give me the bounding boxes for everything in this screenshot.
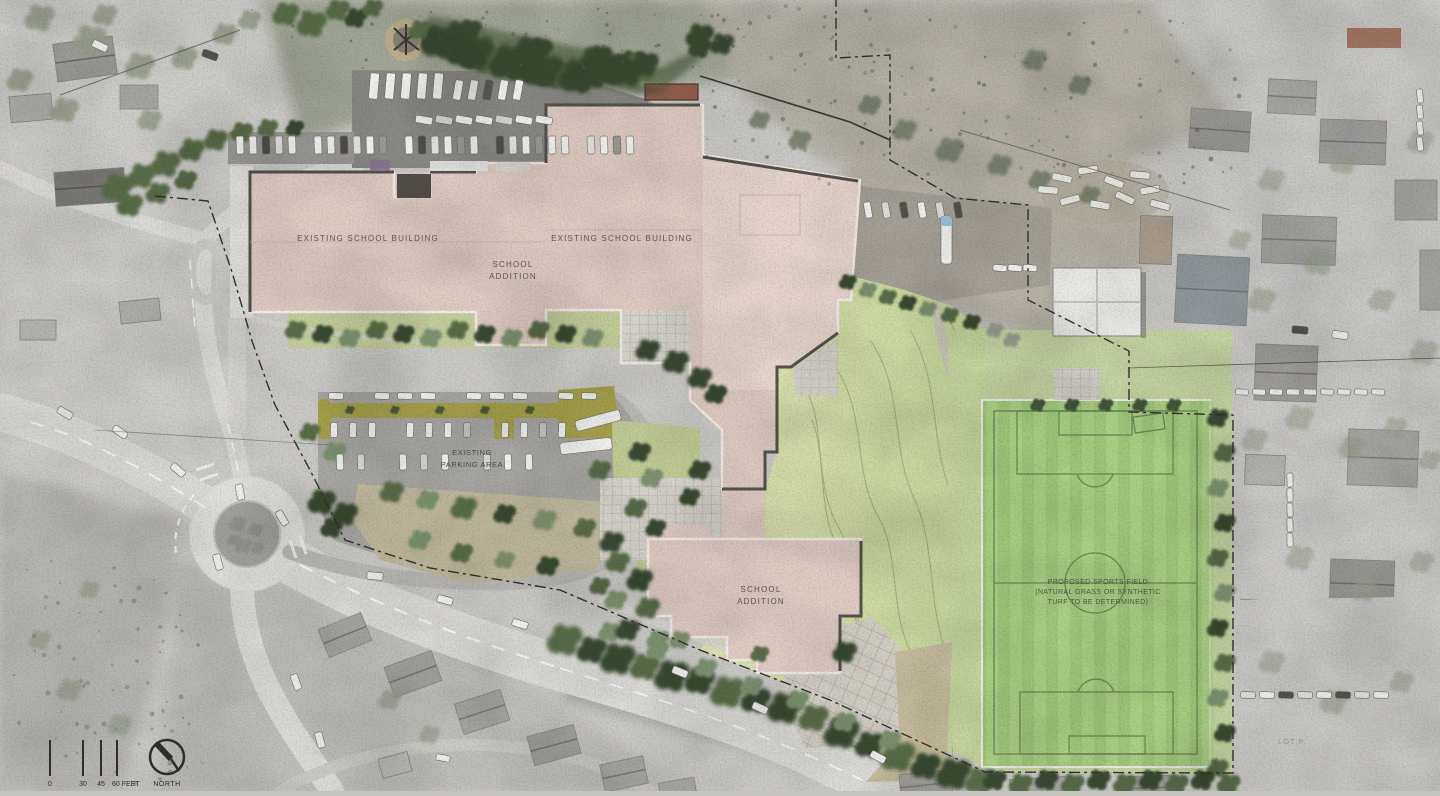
svg-text:PROPOSED SPORTS FIELD: PROPOSED SPORTS FIELD [1048, 579, 1148, 586]
svg-text:ADDITION: ADDITION [737, 597, 785, 606]
svg-text:0: 0 [48, 781, 52, 788]
svg-text:60 FEET: 60 FEET [112, 781, 140, 788]
svg-text:ADDITION: ADDITION [489, 272, 537, 281]
svg-text:PARKING AREA: PARKING AREA [441, 460, 504, 469]
svg-text:TURF TO BE DETERMINED): TURF TO BE DETERMINED) [1048, 599, 1149, 606]
svg-text:EXISTING SCHOOL BUILDING: EXISTING SCHOOL BUILDING [297, 234, 439, 243]
svg-text:NORTH: NORTH [153, 781, 180, 788]
svg-text:SCHOOL: SCHOOL [741, 585, 782, 594]
svg-text:45: 45 [97, 781, 105, 788]
svg-text:(NATURAL GRASS OR SYNTHETIC: (NATURAL GRASS OR SYNTHETIC [1035, 589, 1161, 596]
svg-text:EXISTING: EXISTING [452, 448, 492, 457]
svg-text:EXISTING SCHOOL BUILDING: EXISTING SCHOOL BUILDING [551, 234, 693, 243]
svg-text:SCHOOL: SCHOOL [493, 260, 534, 269]
svg-text:30: 30 [79, 781, 87, 788]
